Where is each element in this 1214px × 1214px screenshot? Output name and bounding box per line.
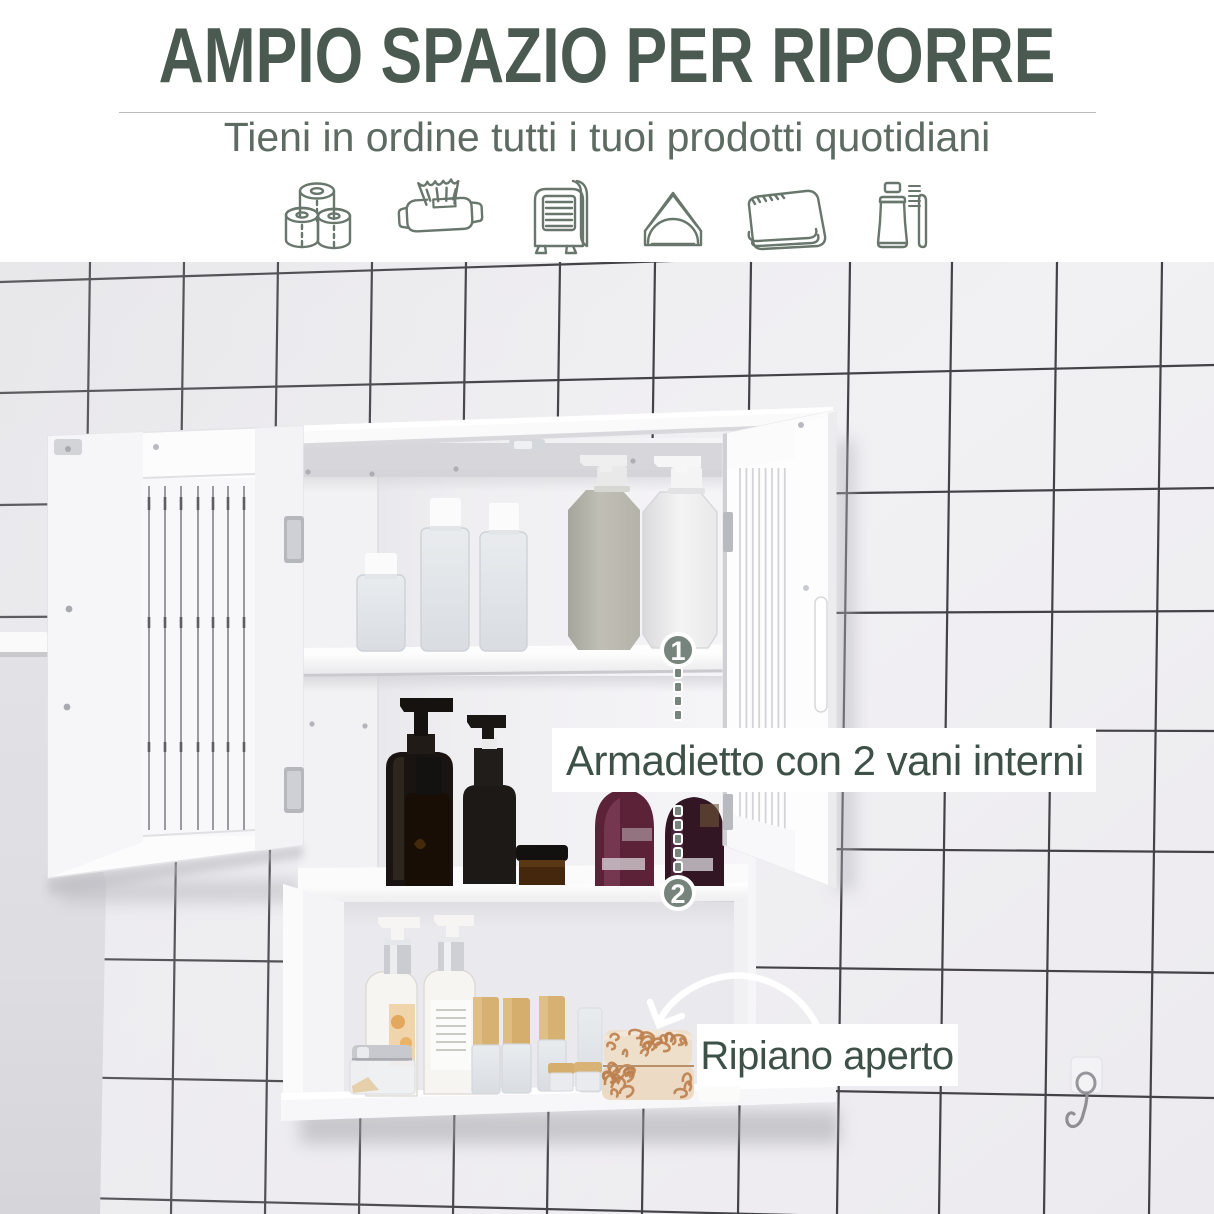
svg-text:Ripiano aperto: Ripiano aperto (700, 1034, 953, 1078)
svg-text:Armadietto con 2 vani interni: Armadietto con 2 vani interni (566, 737, 1084, 784)
svg-text:2: 2 (670, 879, 685, 909)
svg-text:1: 1 (670, 636, 685, 666)
